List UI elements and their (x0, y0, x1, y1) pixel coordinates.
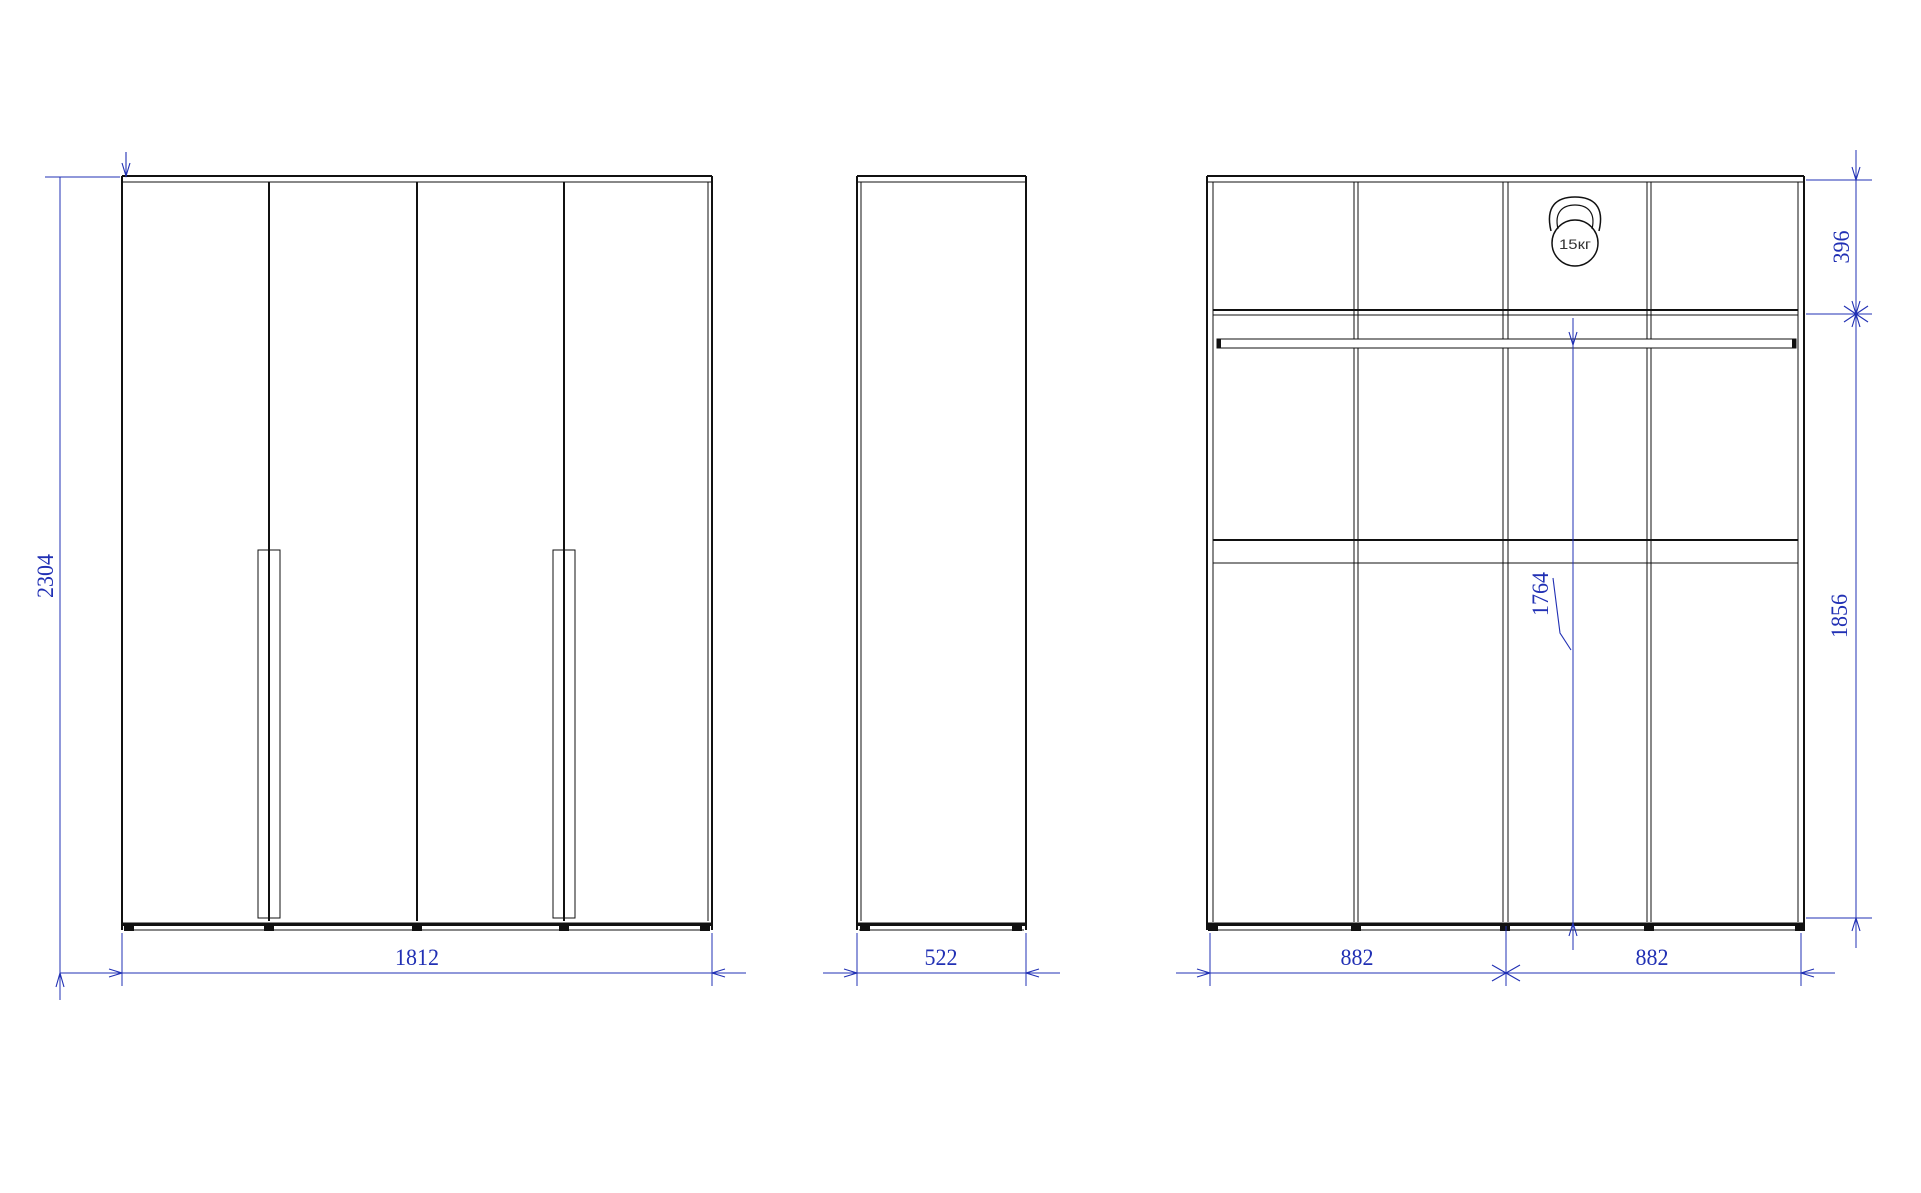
dim-rail-1764: 1764 (1528, 318, 1577, 950)
dim-label-2304: 2304 (33, 554, 58, 598)
dim-right: 396 1856 (1806, 150, 1872, 948)
side-view (857, 176, 1026, 931)
dim-label-1812: 1812 (395, 945, 439, 970)
middle-shelf (1213, 540, 1798, 563)
front-view (122, 176, 712, 931)
internal-view (1207, 176, 1805, 931)
top-shelf (1213, 310, 1798, 315)
dim-label-522: 522 (925, 945, 958, 970)
dim-label-396: 396 (1829, 231, 1854, 264)
dim-height-2304: 2304 (33, 152, 130, 1000)
dim-label-1856: 1856 (1827, 594, 1852, 638)
dim-label-882-right: 882 (1636, 945, 1669, 970)
dim-label-1764: 1764 (1528, 572, 1553, 616)
dim-label-882-left: 882 (1341, 945, 1374, 970)
technical-drawing: 15кг 2304 (0, 0, 1921, 1193)
internal-partition (1354, 182, 1651, 922)
kettlebell-icon: 15кг (1549, 197, 1600, 266)
hanging-rail (1217, 339, 1796, 348)
max-load-label: 15кг (1559, 236, 1591, 252)
